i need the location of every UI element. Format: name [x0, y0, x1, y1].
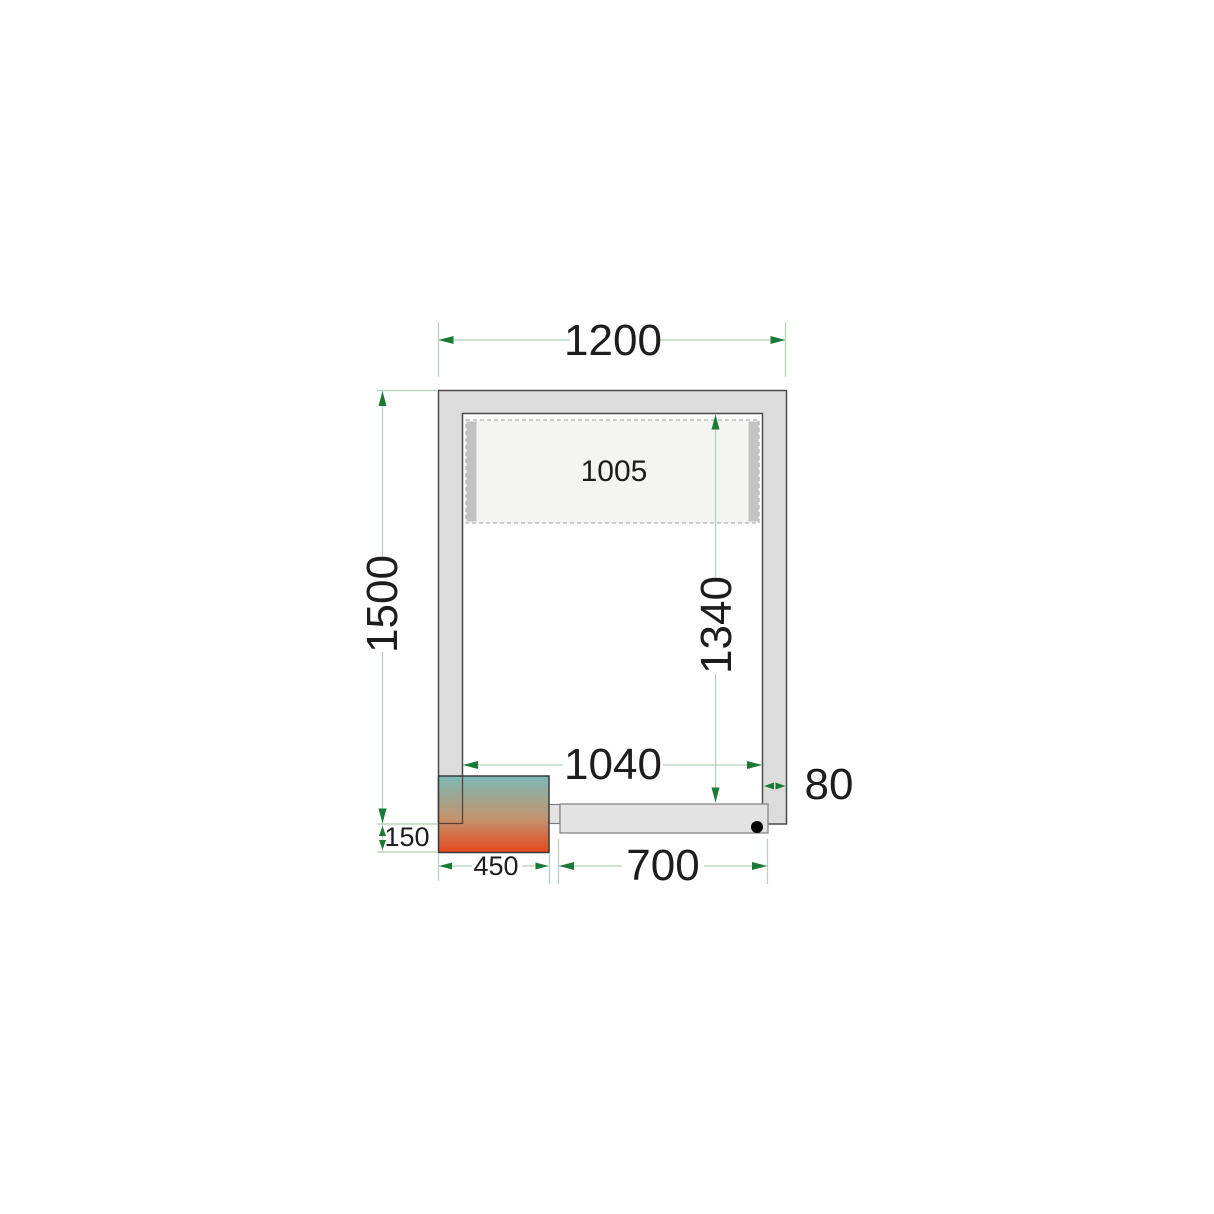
dim-door-width-label: 700	[626, 841, 699, 890]
door-frame-step	[548, 805, 560, 824]
dim-unit-protrusion-label: 150	[384, 822, 429, 852]
evaporator-mount-right	[749, 422, 759, 522]
dim-unit-width-label: 450	[473, 851, 518, 881]
dim-wall-thickness-label: 80	[805, 760, 854, 809]
dim-inner-height-label: 1340	[692, 576, 741, 674]
dim-panel-width-label: 1005	[581, 455, 648, 488]
drawing-canvas: 1200 1500 1005 1340 1040 80 150 450 700	[0, 0, 1214, 1214]
floor-plan-drawing: 1200 1500 1005 1340 1040 80 150 450 700	[0, 0, 1214, 1214]
door-leaf	[560, 804, 768, 833]
dim-inner-width-label: 1040	[564, 740, 662, 789]
evaporator-mount-left	[467, 422, 477, 522]
dim-outer-width-label: 1200	[564, 316, 662, 365]
dim-outer-height-label: 1500	[358, 555, 407, 653]
door-handle-dot	[751, 821, 763, 833]
cooling-unit	[439, 776, 550, 853]
